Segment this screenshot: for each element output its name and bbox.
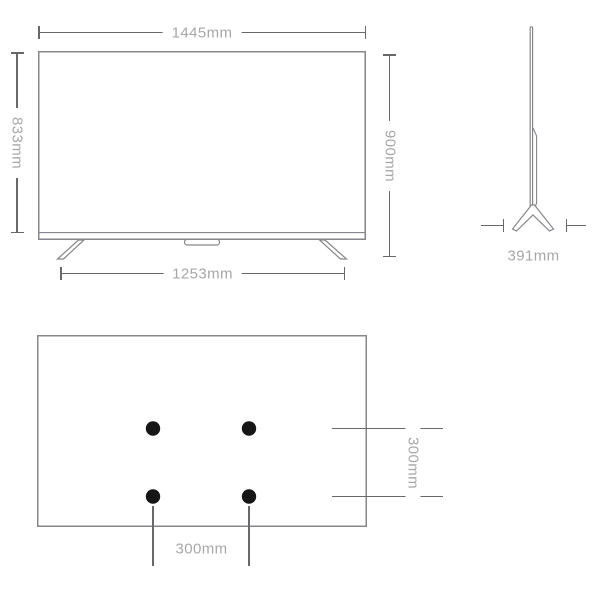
vesa-horizontal-label: 300mm xyxy=(166,541,236,556)
tv-side-panel-profile xyxy=(530,27,532,213)
stand-span-label: 1253mm xyxy=(163,266,242,281)
vesa-vertical-label: 300mm xyxy=(406,427,421,497)
tv-dimensions-diagram: 1445mm 833mm 900mm 1253mm 391mm 300mm xyxy=(0,0,600,600)
front-view xyxy=(39,52,366,259)
side-stand-foot xyxy=(513,205,554,231)
tv-back-outline xyxy=(38,336,367,527)
stand-foot-right xyxy=(320,240,347,259)
tv-front-outline xyxy=(39,52,366,240)
stand-foot-left xyxy=(58,240,85,259)
tv-logo-tab xyxy=(185,239,220,245)
side-view xyxy=(513,27,554,231)
diagram-shapes xyxy=(0,0,600,600)
overall-height-label: 900mm xyxy=(382,120,397,190)
back-view xyxy=(38,336,367,527)
vesa-hole xyxy=(146,421,160,435)
overall-width-label: 1445mm xyxy=(163,25,242,40)
stand-depth-label: 391mm xyxy=(498,249,568,264)
vesa-hole xyxy=(146,489,160,503)
vesa-hole xyxy=(242,489,256,503)
vesa-hole xyxy=(242,421,256,435)
tv-side-back-bulge xyxy=(533,128,537,211)
panel-height-label: 833mm xyxy=(10,107,25,177)
